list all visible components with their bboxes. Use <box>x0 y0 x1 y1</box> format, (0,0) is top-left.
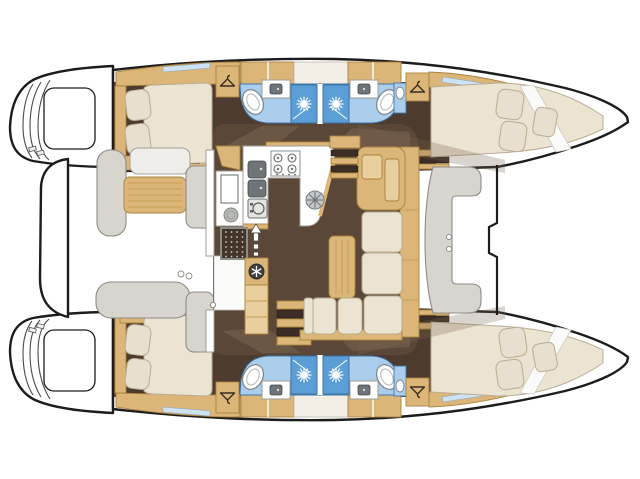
stove <box>271 151 300 176</box>
salon-aft-wall <box>206 150 214 256</box>
sink <box>248 180 266 197</box>
oven <box>248 199 267 218</box>
salon <box>206 124 505 355</box>
cup-holder <box>446 246 451 251</box>
door-handle <box>210 302 215 307</box>
cockpit-aft-bench <box>96 282 190 318</box>
cup-holder <box>446 234 451 239</box>
aft-crossbeam-platform <box>40 159 68 317</box>
sofa-cushion <box>338 298 362 334</box>
salon-aft-wall <box>206 310 214 352</box>
cutting-board <box>221 175 238 203</box>
sofa-cushion <box>312 298 336 334</box>
catamaran-floorplan <box>0 0 640 479</box>
basin <box>224 208 238 222</box>
forward-cockpit <box>425 165 497 315</box>
round-sink <box>306 191 324 209</box>
salon-table <box>329 236 355 298</box>
floorplan-page <box>0 0 640 479</box>
c-shaped-bench <box>425 167 481 313</box>
galley-cabinet <box>245 285 268 334</box>
cockpit-table <box>124 177 186 213</box>
refrigerator <box>245 258 268 285</box>
sink <box>248 161 266 178</box>
cup-holder <box>178 271 184 277</box>
sofa-corner-cushion <box>364 296 402 334</box>
sofa-armrest <box>304 298 313 334</box>
forward-crossbeam <box>489 165 497 315</box>
chart-table <box>357 147 405 210</box>
cockpit-cushion <box>130 148 190 174</box>
cockpit-side-bench <box>97 150 126 236</box>
cup-holder <box>186 273 192 279</box>
floor-hatch <box>221 228 247 259</box>
entry-vestibule <box>214 256 246 310</box>
sofa-cushion <box>362 253 402 294</box>
sofa-cushion <box>362 212 402 252</box>
